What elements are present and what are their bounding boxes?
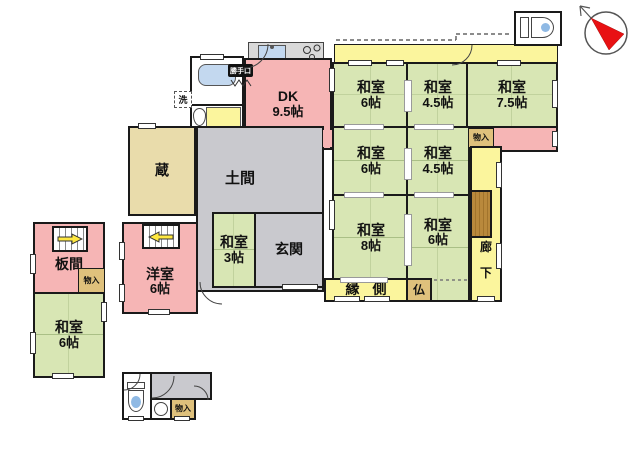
window-marker <box>148 309 170 315</box>
room-dk-size: 9.5帖 <box>272 105 303 119</box>
backdoor-label: 勝手口 <box>228 64 253 77</box>
sliding-door-marker <box>404 80 412 112</box>
window-marker <box>52 373 74 379</box>
window-marker <box>128 416 144 421</box>
toilet-tank-icon <box>520 17 529 38</box>
window-marker <box>496 243 502 269</box>
toilet-seat-icon <box>131 396 141 408</box>
room-kura: 蔵 <box>128 126 196 216</box>
wood-steps <box>470 190 492 238</box>
dk-opening <box>323 130 332 147</box>
butsudan-alcove: 仏 <box>406 278 432 302</box>
window-marker <box>138 123 156 129</box>
washbasin-icon <box>154 402 168 416</box>
room-dk-name: DK <box>278 89 298 104</box>
kitchen-sink-icon <box>258 45 286 59</box>
compass-circle <box>585 12 627 54</box>
window-marker <box>282 284 318 290</box>
floor-plan-canvas: 洗 DK 9.5帖 勝手口 冷 土間 蔵 和室 3帖 玄関 和室 6帖 和室 4… <box>0 0 640 452</box>
sliding-door-marker <box>404 148 412 180</box>
compass-north-arrow <box>580 6 591 18</box>
window-marker <box>174 416 190 421</box>
sliding-door-marker <box>344 124 384 130</box>
room-washitsu-45-n: 和室 4.5帖 <box>406 62 470 128</box>
toilet-tank-icon <box>127 382 145 389</box>
east-corridor-label: 廊 下 <box>474 238 498 281</box>
window-marker <box>552 131 558 147</box>
window-marker <box>477 296 495 302</box>
closet-east: 物入 <box>468 128 494 148</box>
room-washitsu-75: 和室 7.5帖 <box>466 62 558 128</box>
room-genkan: 玄関 <box>254 212 324 288</box>
stairs-west <box>52 226 88 252</box>
window-marker <box>30 254 36 274</box>
room-washitsu-8: 和室 8帖 <box>332 194 410 282</box>
laundry-label: 洗 <box>174 91 192 108</box>
compass-needle <box>591 18 624 50</box>
window-marker <box>334 296 360 302</box>
toilet-seat-icon <box>541 23 550 32</box>
room-doma-name: 土間 <box>218 168 262 186</box>
window-marker <box>119 284 125 302</box>
window-marker <box>329 200 335 230</box>
window-marker <box>30 332 36 354</box>
room-washitsu-6-ne: 和室 6帖 <box>332 62 410 128</box>
backdoor-label-text: 勝手口 <box>230 66 251 76</box>
window-marker <box>329 68 335 92</box>
closet-west: 物入 <box>78 268 105 294</box>
room-kura-name: 蔵 <box>155 163 169 178</box>
stairs-middle <box>142 224 180 249</box>
eave-dashed-line <box>336 34 512 40</box>
sliding-door-marker <box>340 277 388 283</box>
window-marker <box>101 302 107 322</box>
stairs-up-arrow <box>148 231 174 243</box>
south-hall <box>150 372 212 400</box>
compass-icon <box>572 0 640 64</box>
sliding-door-marker <box>414 124 454 130</box>
window-marker <box>552 80 558 108</box>
stairs-up-arrow <box>57 233 83 245</box>
sliding-door-marker <box>404 214 412 266</box>
window-marker <box>200 54 224 60</box>
laundry-label-text: 洗 <box>178 93 187 106</box>
room-washitsu-6-mid: 和室 6帖 <box>332 126 410 196</box>
window-marker <box>348 60 372 66</box>
sliding-door-marker <box>414 192 454 198</box>
sliding-door-marker <box>344 192 384 198</box>
window-marker <box>364 296 390 302</box>
room-washitsu-6-w: 和室 6帖 <box>33 292 105 378</box>
room-washitsu-3: 和室 3帖 <box>212 212 256 288</box>
window-marker <box>497 60 521 66</box>
window-marker <box>496 162 502 188</box>
room-washitsu-45-mid: 和室 4.5帖 <box>406 126 470 196</box>
window-marker <box>119 242 125 260</box>
window-marker <box>386 60 404 66</box>
